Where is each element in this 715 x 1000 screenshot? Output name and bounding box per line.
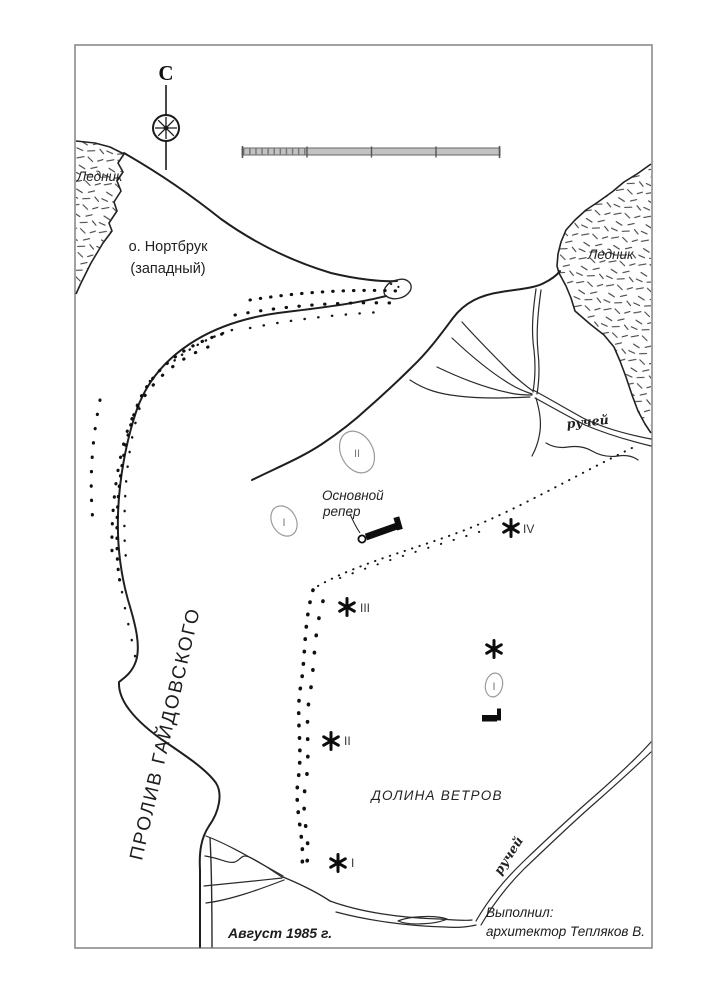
- benchmark-label-line2: репер: [322, 504, 361, 519]
- survey-marker-ii-label: II: [344, 734, 351, 748]
- island-name-label: о. Нортбрук: [129, 239, 209, 255]
- map-canvas: С: [0, 0, 715, 1000]
- survey-marker-iii-label: III: [360, 601, 370, 615]
- glacier-label-left: Ледник: [76, 169, 123, 184]
- date-label: Август 1985 г.: [227, 925, 332, 941]
- map-page: С: [0, 0, 715, 1000]
- valley-label: ДОЛИНА ВЕТРОВ: [369, 788, 502, 803]
- compass-north-label: С: [158, 61, 173, 85]
- benchmark-label-line1: Основной: [322, 488, 384, 503]
- lake-upper-label: II: [354, 448, 360, 460]
- survey-marker-i-label: I: [351, 856, 354, 870]
- compass-rose-icon: [153, 115, 179, 141]
- credit-line2: архитектор Тепляков В.: [486, 924, 645, 939]
- lake-small-label: I: [492, 681, 495, 693]
- survey-marker-iv-label: IV: [523, 522, 534, 536]
- credit-line1: Выполнил:: [486, 905, 554, 920]
- island-name-sub-label: (западный): [130, 261, 205, 277]
- lake-lower-label: I: [282, 517, 285, 529]
- glacier-label-right: Ледник: [587, 247, 634, 262]
